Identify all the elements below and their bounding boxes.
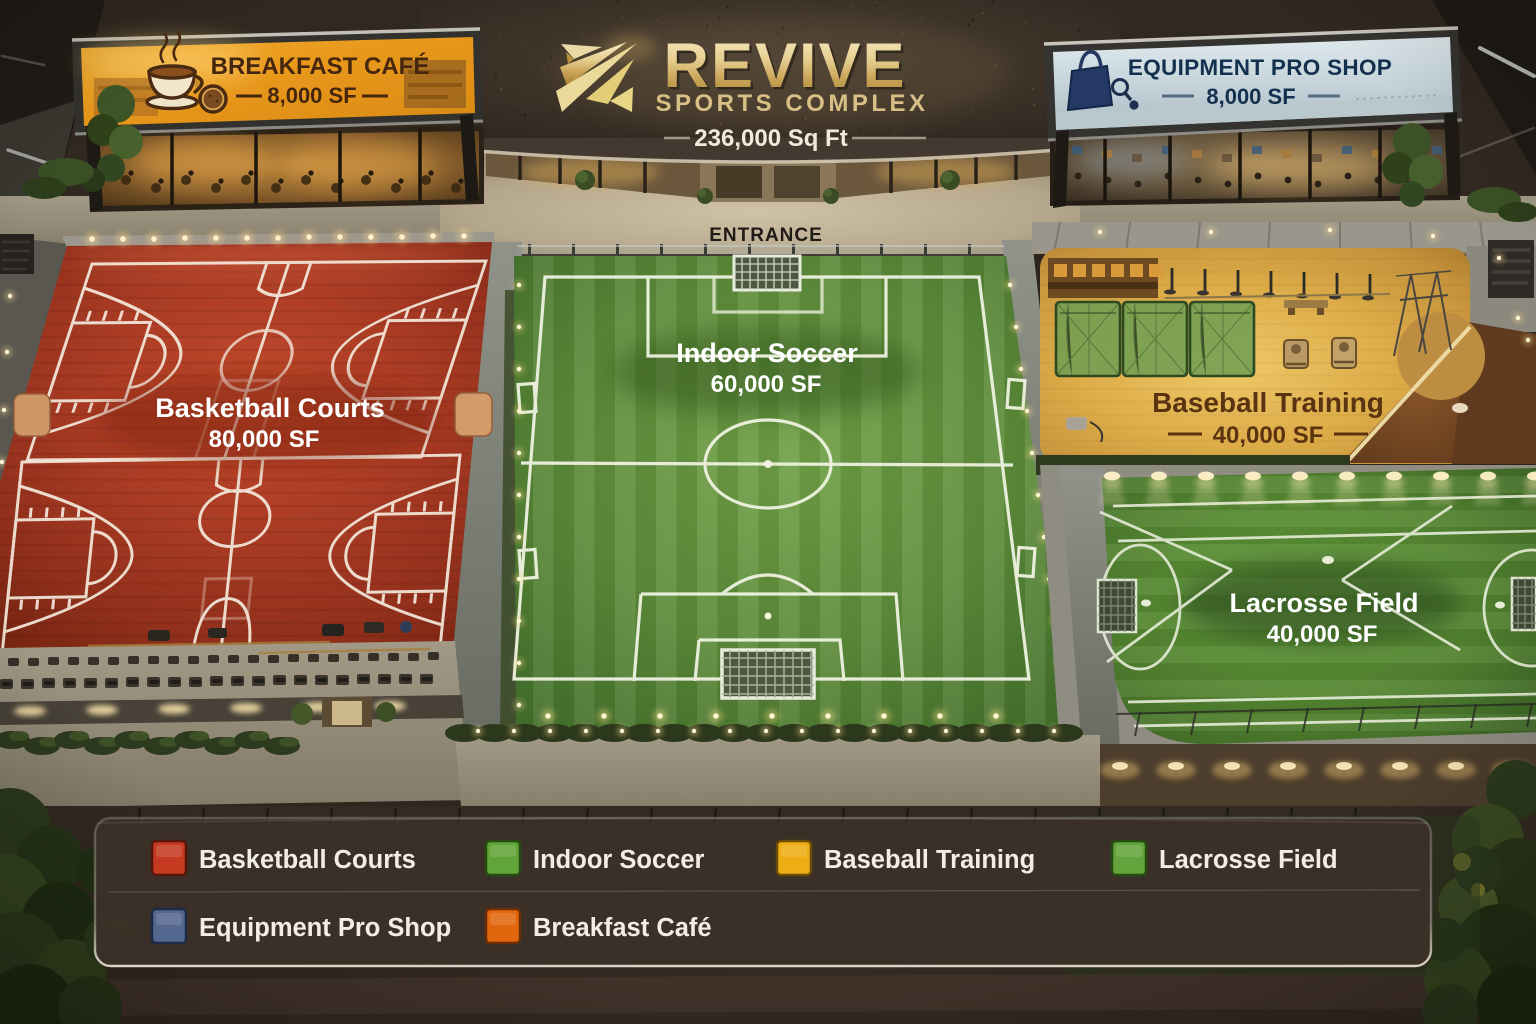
svg-text:Baseball Training: Baseball Training xyxy=(824,846,1035,874)
svg-text:Lacrosse Field: Lacrosse Field xyxy=(1159,846,1338,874)
svg-text:Equipment Pro Shop: Equipment Pro Shop xyxy=(199,914,451,942)
svg-text:ENTRANCE: ENTRANCE xyxy=(709,225,823,246)
svg-text:Basketball Courts: Basketball Courts xyxy=(199,846,416,874)
svg-text:Indoor Soccer: Indoor Soccer xyxy=(533,846,705,874)
svg-text:Breakfast Café: Breakfast Café xyxy=(533,914,712,942)
